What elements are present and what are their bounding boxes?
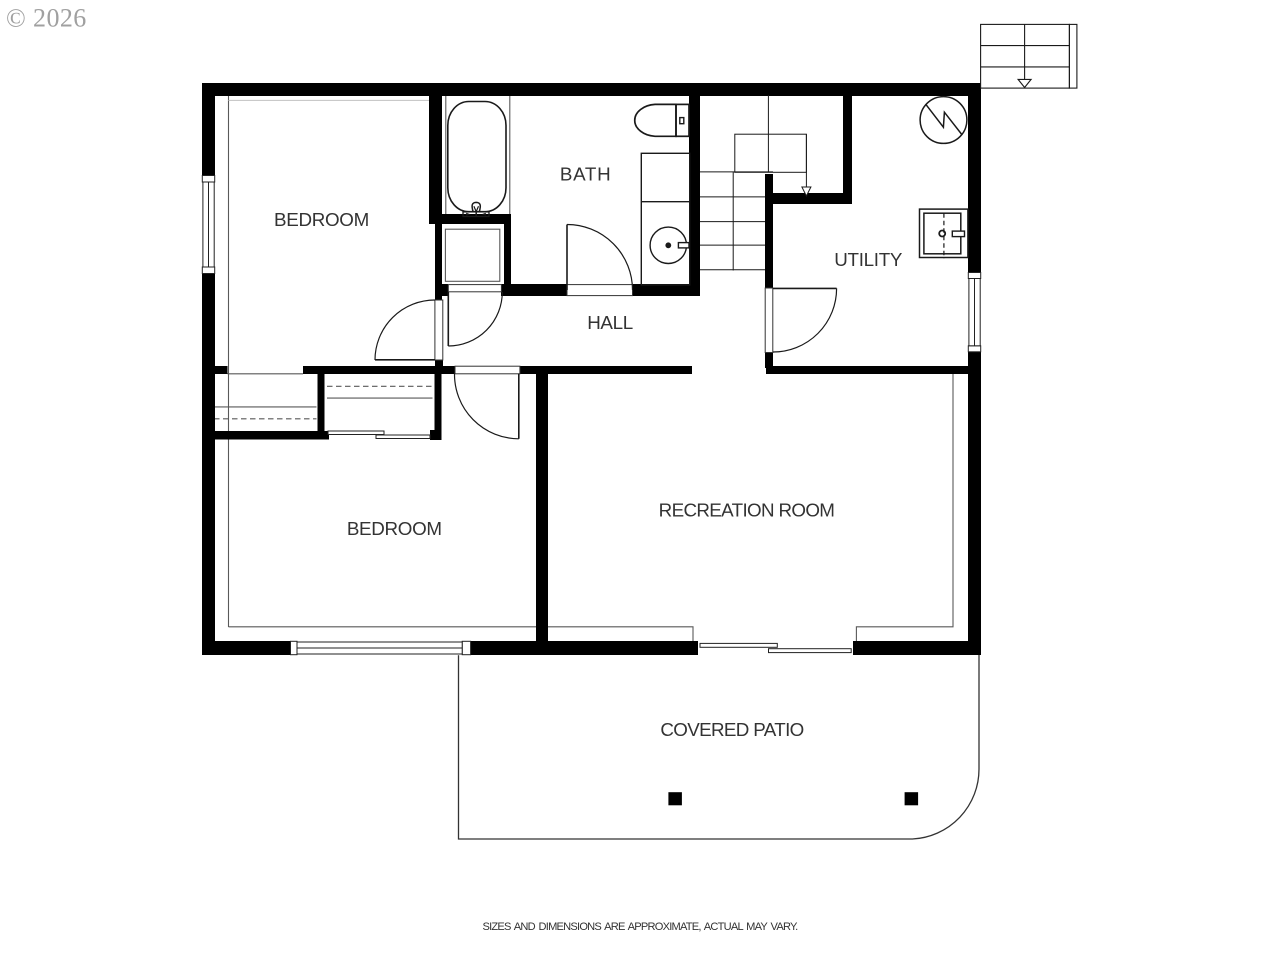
svg-text:HALL: HALL xyxy=(587,312,633,333)
svg-text:RECREATION ROOM: RECREATION ROOM xyxy=(659,500,835,521)
svg-text:BEDROOM: BEDROOM xyxy=(347,518,442,539)
svg-text:BATH: BATH xyxy=(560,164,612,185)
svg-text:© 2026: © 2026 xyxy=(6,4,87,33)
svg-text:BEDROOM: BEDROOM xyxy=(274,209,369,230)
svg-text:UTILITY: UTILITY xyxy=(834,249,903,270)
svg-text:SIZES AND DIMENSIONS ARE APPRO: SIZES AND DIMENSIONS ARE APPROXIMATE, AC… xyxy=(483,921,799,933)
svg-text:COVERED PATIO: COVERED PATIO xyxy=(660,719,803,740)
